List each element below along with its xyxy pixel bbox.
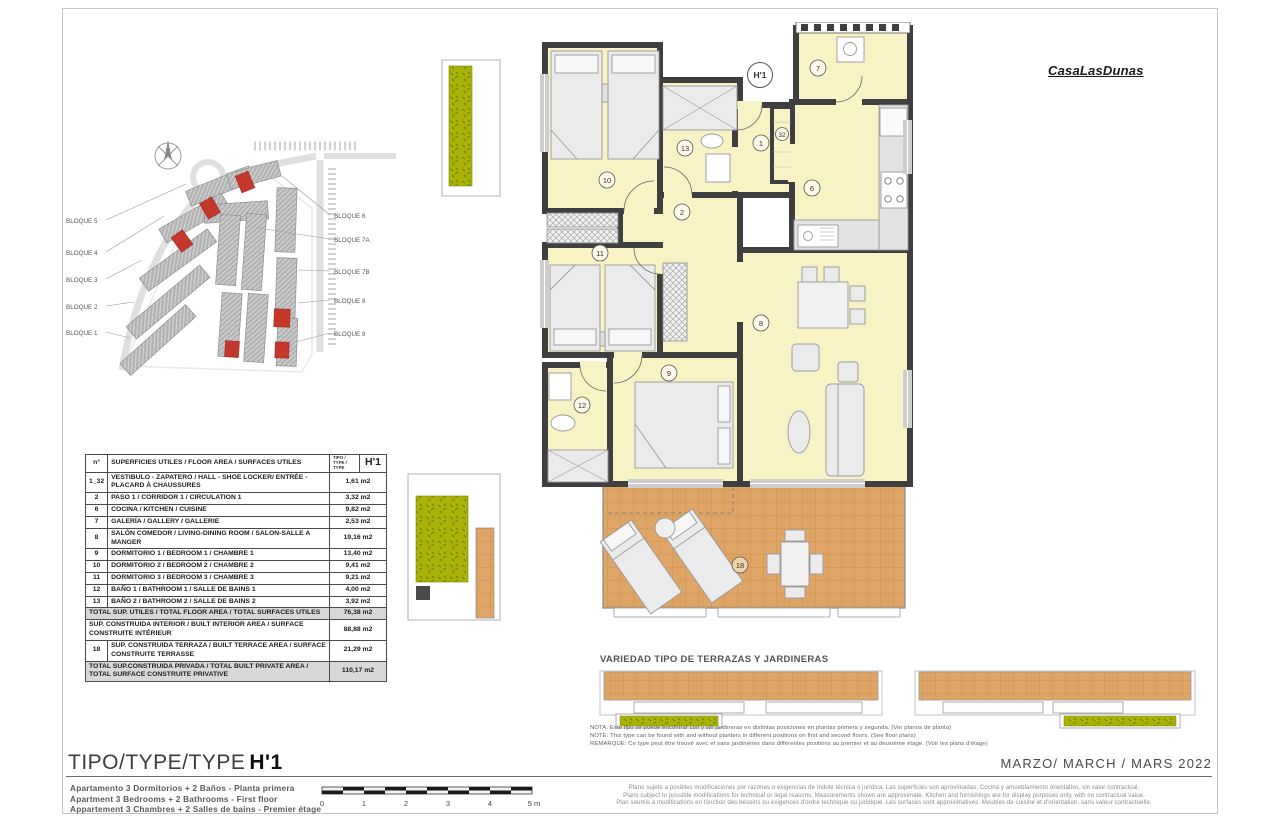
double-bed <box>635 382 733 468</box>
terrace-variants-title: VARIEDAD TIPO DE TERRAZAS Y JARDINERAS <box>600 654 828 665</box>
note-line: REMARQUE: Ce type peut être trouvé avec … <box>590 740 988 748</box>
table-row: 10DORMITORIO 2 / BEDROOM 2 / CHAMBRE 29,… <box>86 561 387 573</box>
scale-bar: 0 1 2 3 4 5 m <box>312 782 552 812</box>
col-type-code: H'1 <box>360 455 387 473</box>
pouf <box>788 411 810 453</box>
row-num: 7 <box>86 516 108 528</box>
room-number-bedroom1: 9 <box>667 369 671 378</box>
disclaimer-line: Plan soumis à modifications en fonction … <box>552 800 1216 808</box>
scale-tick: 0 <box>320 799 324 808</box>
brand-logo: CasaLasDunas <box>1048 63 1144 78</box>
table-row-total: TOTAL SUP. UTILES / TOTAL FLOOR AREA / T… <box>86 608 387 620</box>
subtitle-line: Apartment 3 Bedrooms + 2 Bathrooms - Fir… <box>70 794 321 805</box>
table-header: n° SUPERFICIES UTILES / FLOOR AREA / SUR… <box>86 455 387 473</box>
col-description: SUPERFICIES UTILES / FLOOR AREA / SURFAC… <box>108 455 330 473</box>
scale-tick: 4 <box>488 799 492 808</box>
side-table <box>655 518 675 538</box>
toilet <box>551 415 575 431</box>
terrace-variant-diagrams <box>598 668 1198 730</box>
kitchen-sink <box>798 225 838 247</box>
room-number-hall: 1 <box>759 139 763 148</box>
table-row: 13BAÑO 2 / BATHROOM 2 / SALLE DE BAINS 2… <box>86 596 387 608</box>
bloque-label: BLOQUE 2 <box>66 304 98 311</box>
row-num: 13 <box>86 596 108 608</box>
subtitle-line: Appartement 3 Chambres + 2 Salles de bai… <box>70 804 321 815</box>
row-desc: PASO 1 / CORRIDOR 1 / CIRCULATION 1 <box>108 493 330 505</box>
bloque-label: BLOQUE 7A <box>334 237 370 244</box>
row-num: 8 <box>86 528 108 549</box>
row-val: 2,53 m2 <box>330 516 387 528</box>
terrace-variant-right <box>915 671 1195 728</box>
sheet-title-code: H'1 <box>249 751 282 774</box>
table-row: 8SALÓN COMEDOR / LIVING-DINING ROOM / SA… <box>86 528 387 549</box>
armchair <box>838 362 858 382</box>
washbasin <box>549 373 571 400</box>
row-val: 1,61 m2 <box>330 472 387 493</box>
room-number-bedroom3: 11 <box>596 249 604 258</box>
col-tipo: TIPO / TYPE / TYPE <box>330 455 360 473</box>
floor-plan: H'1 1 2 6 7 8 9 10 11 12 13 18 32 <box>400 22 920 642</box>
bloque-label: BLOQUE 8 <box>334 298 366 305</box>
armchair <box>792 344 819 371</box>
notes: NOTA: Este tipo se puede encontrar con y… <box>590 724 988 748</box>
sheet-title: TIPO/TYPE/TYPEH'1 <box>68 751 283 775</box>
room-number-terrace: 18 <box>736 561 744 570</box>
bloque-label: BLOQUE 6 <box>334 213 366 220</box>
row-val: 9,41 m2 <box>330 561 387 573</box>
table-row: 11DORMITORIO 3 / BEDROOM 3 / CHAMBRE 39,… <box>86 572 387 584</box>
unit-label: H'1 <box>748 63 773 88</box>
garden-bottom-left <box>408 474 500 620</box>
washbasin <box>706 154 730 182</box>
row-num: 12 <box>86 584 108 596</box>
bloque-label: BLOQUE 9 <box>334 331 366 338</box>
subtitle-line: Apartamento 3 Dormitorios + 2 Baños - Pl… <box>70 783 321 794</box>
terrace-variant-left <box>600 671 882 728</box>
row-desc: COCINA / KITCHEN / CUISINE <box>108 505 330 517</box>
row-desc: BAÑO 1 / BATHROOM 1 / SALLE DE BAINS 1 <box>108 584 330 596</box>
room-number-corridor: 2 <box>680 208 684 217</box>
row-desc: DORMITORIO 1 / BEDROOM 1 / CHAMBRE 1 <box>108 549 330 561</box>
stove <box>881 172 907 208</box>
room-number-kitchen: 6 <box>810 184 814 193</box>
gallery-vent <box>796 22 910 33</box>
row-desc: SUP. CONSTRUIDA INTERIOR / BUILT INTERIO… <box>86 620 330 641</box>
sheet-subtitles: Apartamento 3 Dormitorios + 2 Baños - Pl… <box>70 783 321 815</box>
note-line: NOTE: This type can be found with and wi… <box>590 732 988 740</box>
room-number-living: 8 <box>759 319 763 328</box>
scale-tick: 3 <box>446 799 450 808</box>
row-num: 18 <box>86 640 108 661</box>
row-val: 76,38 m2 <box>330 608 387 620</box>
table-row: SUP. CONSTRUIDA INTERIOR / BUILT INTERIO… <box>86 620 387 641</box>
row-val: 3,32 m2 <box>330 493 387 505</box>
sheet-title-prefix: TIPO/TYPE/TYPE <box>68 751 245 774</box>
bloque-label: BLOQUE 5 <box>66 218 98 225</box>
row-desc: TOTAL SUP.CONSTRUIDA PRIVADA / TOTAL BUI… <box>86 661 330 682</box>
row-desc: DORMITORIO 2 / BEDROOM 2 / CHAMBRE 2 <box>108 561 330 573</box>
site-buildings <box>120 161 298 376</box>
row-val: 4,00 m2 <box>330 584 387 596</box>
row-desc: SALÓN COMEDOR / LIVING-DINING ROOM / SAL… <box>108 528 330 549</box>
bloque-label: BLOQUE 4 <box>66 250 98 257</box>
compass-icon <box>155 140 181 169</box>
area-table: n° SUPERFICIES UTILES / FLOOR AREA / SUR… <box>85 454 387 682</box>
row-val: 19,16 m2 <box>330 528 387 549</box>
row-desc: SUP. CONSTRUIDA TERRAZA / BUILT TERRACE … <box>108 640 330 661</box>
table-row: 18SUP. CONSTRUIDA TERRAZA / BUILT TERRAC… <box>86 640 387 661</box>
note-line: NOTA: Este tipo se puede encontrar con y… <box>590 724 988 732</box>
table-row-total: TOTAL SUP.CONSTRUIDA PRIVADA / TOTAL BUI… <box>86 661 387 682</box>
washing-machine <box>837 37 864 62</box>
svg-text:H'1: H'1 <box>754 70 767 80</box>
row-val: 3,92 m2 <box>330 596 387 608</box>
room-number-shoe-locker: 32 <box>778 132 786 139</box>
row-num: 6 <box>86 505 108 517</box>
plan-sheet: { "page": { "brand": "CasaLasDunas" }, "… <box>0 0 1280 820</box>
row-val: 9,82 m2 <box>330 505 387 517</box>
row-desc: BAÑO 2 / BATHROOM 2 / SALLE DE BAINS 2 <box>108 596 330 608</box>
table-row: 1_32VESTIBULO - ZAPATERO / HALL - SHOE L… <box>86 472 387 493</box>
sofa <box>826 384 864 476</box>
table-row: 6COCINA / KITCHEN / CUISINE9,82 m2 <box>86 505 387 517</box>
planter-top-left <box>442 60 500 196</box>
row-val: 13,40 m2 <box>330 549 387 561</box>
room-number-bathroom1: 12 <box>578 401 586 410</box>
disclaimer-line: Plans subject to possible modifications … <box>552 793 1216 801</box>
bloque-label: BLOQUE 3 <box>66 277 98 284</box>
bloque-label: BLOQUE 1 <box>66 330 98 337</box>
col-number: n° <box>86 455 108 473</box>
bloque-label: BLOQUE 7B <box>334 269 370 276</box>
shower <box>548 450 608 482</box>
row-num: 2 <box>86 493 108 505</box>
title-block-rule <box>66 776 1212 777</box>
row-num: 9 <box>86 549 108 561</box>
table-row: 7GALERÍA / GALLERY / GALLERIE2,53 m2 <box>86 516 387 528</box>
table-row: 12BAÑO 1 / BATHROOM 1 / SALLE DE BAINS 1… <box>86 584 387 596</box>
table-row: 9DORMITORIO 1 / BEDROOM 1 / CHAMBRE 113,… <box>86 549 387 561</box>
row-val: 88,88 m2 <box>330 620 387 641</box>
site-plan: BLOQUE 5 BLOQUE 4 BLOQUE 3 BLOQUE 2 BLOQ… <box>58 120 403 392</box>
scale-tick: 1 <box>362 799 366 808</box>
row-val: 21,29 m2 <box>330 640 387 661</box>
row-desc: GALERÍA / GALLERY / GALLERIE <box>108 516 330 528</box>
room-number-bathroom2: 13 <box>681 144 689 153</box>
row-num: 11 <box>86 572 108 584</box>
row-num: 1_32 <box>86 472 108 493</box>
disclaimer: Plano sujeto a posibles modificaciones p… <box>552 785 1216 808</box>
row-val: 9,21 m2 <box>330 572 387 584</box>
disclaimer-line: Plano sujeto a posibles modificaciones p… <box>552 785 1216 793</box>
row-desc: DORMITORIO 3 / BEDROOM 3 / CHAMBRE 3 <box>108 572 330 584</box>
room-number-bedroom2: 10 <box>603 176 611 185</box>
row-desc: TOTAL SUP. UTILES / TOTAL FLOOR AREA / T… <box>86 608 330 620</box>
table-row: 2PASO 1 / CORRIDOR 1 / CIRCULATION 13,32… <box>86 493 387 505</box>
room-number-gallery: 7 <box>816 64 820 73</box>
sheet-date: MARZO/ MARCH / MARS 2022 <box>960 756 1212 771</box>
row-desc: VESTIBULO - ZAPATERO / HALL - SHOE LOCKE… <box>108 472 330 493</box>
row-val: 110,17 m2 <box>330 661 387 682</box>
shower <box>663 86 737 130</box>
scale-tick: 5 m <box>528 799 541 808</box>
row-num: 10 <box>86 561 108 573</box>
toilet <box>701 134 723 148</box>
scale-tick: 2 <box>404 799 408 808</box>
